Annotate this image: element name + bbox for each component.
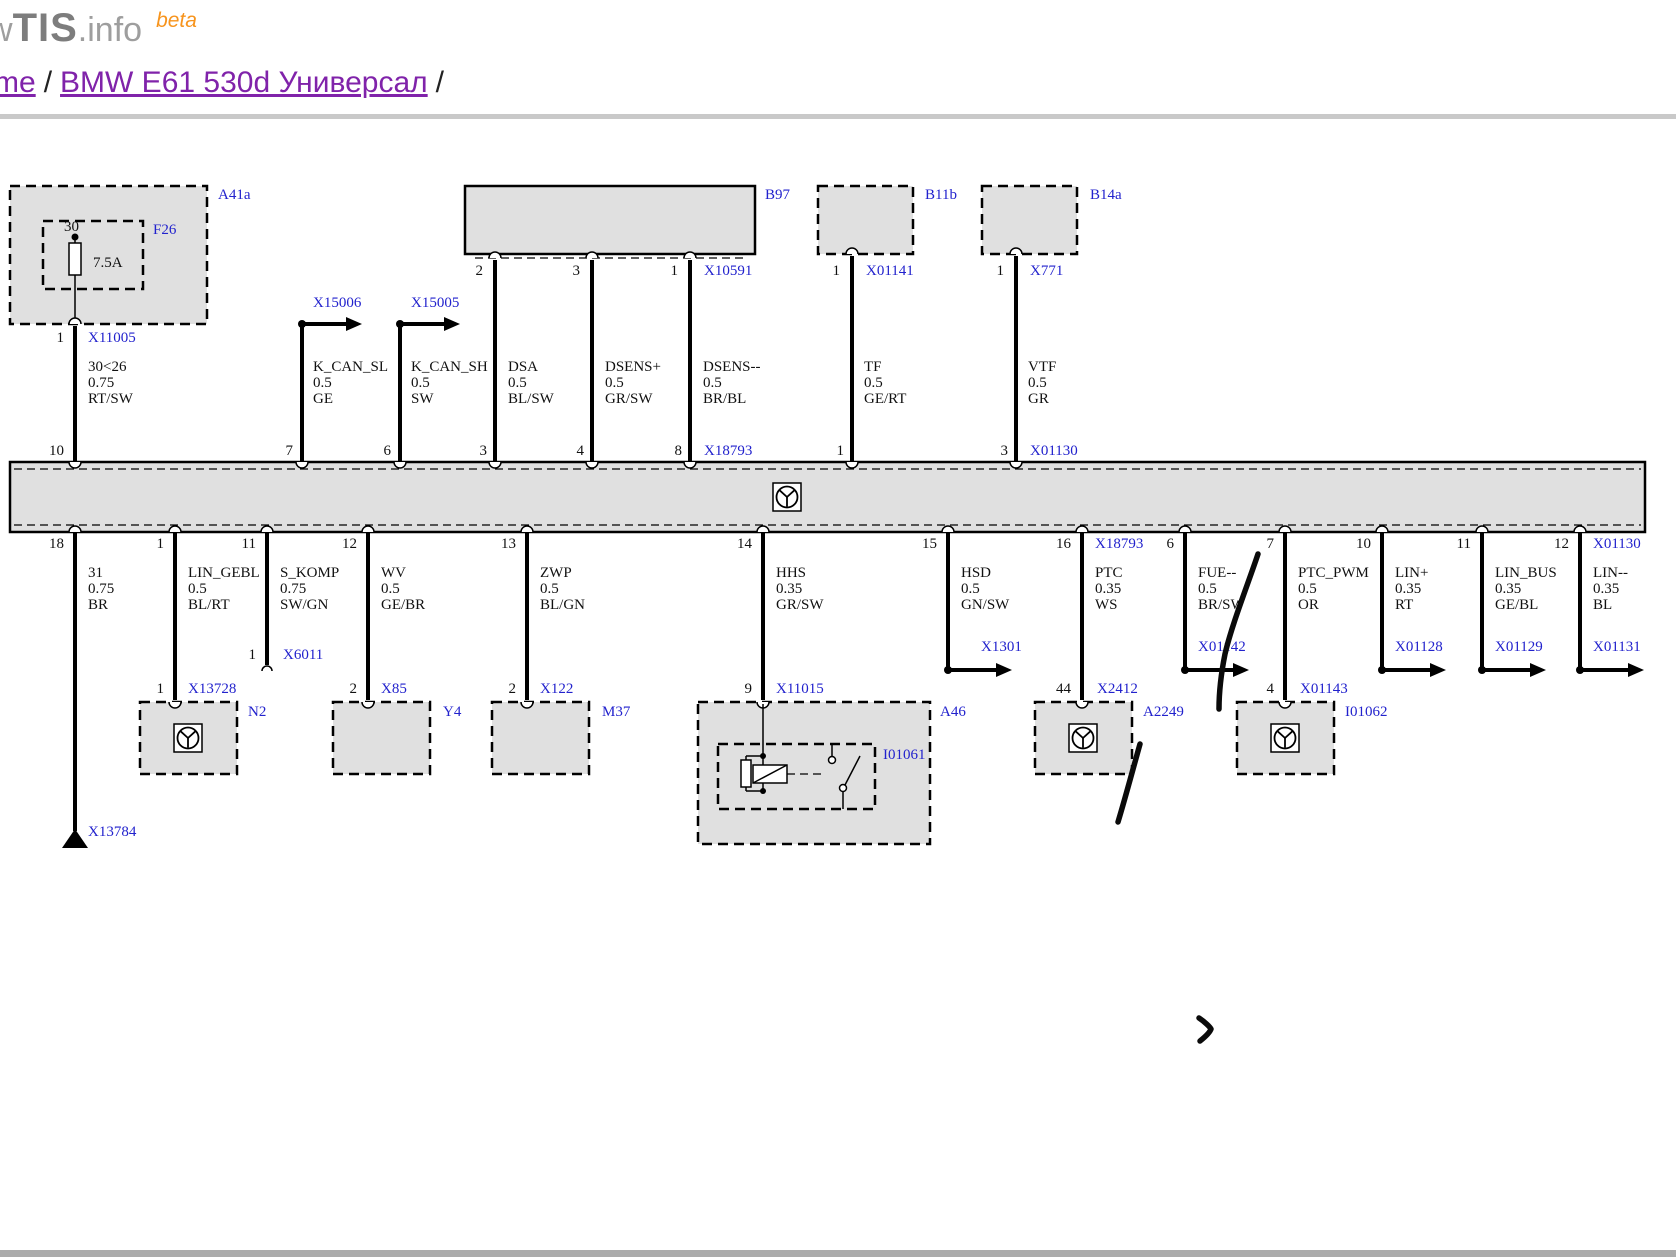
bar-pin-number: 12 bbox=[1554, 536, 1569, 552]
connector-notch bbox=[1179, 526, 1191, 532]
wire-gauge: 0.5 bbox=[605, 375, 624, 391]
connector-notch bbox=[169, 702, 181, 708]
wire-name: FUE-- bbox=[1198, 565, 1236, 581]
connector-label-x01129: X01129 bbox=[1495, 639, 1543, 655]
connector-label-x10591: X10591 bbox=[704, 263, 752, 279]
wire-gauge: 0.75 bbox=[88, 375, 114, 391]
connector-label-x13728: X13728 bbox=[188, 681, 236, 697]
pin-number: 3 bbox=[573, 263, 581, 279]
wire-gauge: 0.5 bbox=[1198, 581, 1217, 597]
breadcrumb: me/BMW E61 530d Универсал/ bbox=[0, 66, 452, 100]
a2249-label: A2249 bbox=[1143, 704, 1184, 720]
wire-color: GE/BR bbox=[381, 597, 425, 613]
arrow-head bbox=[1530, 663, 1546, 677]
pin-number: 9 bbox=[745, 681, 753, 697]
module-icon bbox=[1271, 724, 1299, 752]
i01062-label: I01062 bbox=[1345, 704, 1388, 720]
wire-name: K_CAN_SH bbox=[411, 359, 488, 375]
n2-label: N2 bbox=[248, 704, 266, 720]
wire-gauge: 0.35 bbox=[1095, 581, 1121, 597]
module-icon bbox=[1069, 724, 1097, 752]
pin-number: 4 bbox=[1267, 681, 1275, 697]
connector-notch bbox=[1476, 526, 1488, 532]
bar-pin-number: 14 bbox=[737, 536, 753, 552]
connector-notch bbox=[757, 526, 769, 532]
handwritten-annotations bbox=[1118, 554, 1258, 1041]
bottom-scroll-strip[interactable] bbox=[0, 1250, 1676, 1257]
i01061-label: I01061 bbox=[883, 747, 926, 763]
bar-pin-number: 1 bbox=[837, 443, 845, 459]
logo-beta-badge: beta bbox=[156, 9, 197, 32]
pen-chevron-mark bbox=[1199, 1018, 1211, 1041]
connector-notch bbox=[261, 526, 273, 532]
logo-suffix: .info bbox=[78, 11, 142, 49]
m37-label: M37 bbox=[602, 704, 631, 720]
wire-name: S_KOMP bbox=[280, 565, 339, 581]
wire-color: BR bbox=[88, 597, 108, 613]
wire-gauge: 0.5 bbox=[703, 375, 722, 391]
branch-i01062: 7 PTC_PWM 0.5 OR 4 X01143 I01062 bbox=[1237, 532, 1388, 774]
fuse-symbol bbox=[69, 243, 81, 275]
arrow-head bbox=[996, 663, 1012, 677]
wire-name: LIN-- bbox=[1593, 565, 1628, 581]
bar-pin-number: 11 bbox=[242, 536, 256, 552]
wire-color: GE bbox=[313, 391, 333, 407]
branch-a2249: 16 X18793 PTC 0.35 WS 44 X2412 A2249 bbox=[1035, 532, 1184, 774]
wire-name: K_CAN_SL bbox=[313, 359, 388, 375]
wire-gauge: 0.5 bbox=[540, 581, 559, 597]
fuse-terminal-label: 30 bbox=[64, 219, 79, 235]
main-distribution-bar bbox=[10, 462, 1645, 532]
component-box-b14a: B14a 1 X771 VTF 0.5 GR 3 X01130 bbox=[982, 186, 1122, 462]
wire-gauge: 0.5 bbox=[961, 581, 980, 597]
y4-label: Y4 bbox=[443, 704, 462, 720]
connector-label-x85: X85 bbox=[381, 681, 407, 697]
connector-notch bbox=[362, 526, 374, 532]
wire-gauge: 0.5 bbox=[188, 581, 207, 597]
connector-end bbox=[262, 666, 272, 671]
breadcrumb-home-link[interactable]: me bbox=[0, 66, 36, 99]
connector-notch bbox=[1376, 526, 1388, 532]
wire-name: DSENS-- bbox=[703, 359, 761, 375]
connector-notch bbox=[169, 526, 181, 532]
wiring-diagram: A41a F26 30 7.5A 1 X11005 30<26 0.75 RT/… bbox=[0, 119, 1676, 1250]
branch-x01142: 6 FUE-- 0.5 BR/SW X01142 bbox=[1167, 532, 1250, 677]
connector-notch bbox=[942, 526, 954, 532]
wire-color: GE/RT bbox=[864, 391, 906, 407]
wire-name: LIN_GEBL bbox=[188, 565, 260, 581]
a46-label: A46 bbox=[940, 704, 966, 720]
b97-box bbox=[465, 186, 755, 254]
branch-x01131: 12 X01130 LIN-- 0.35 BL X01131 bbox=[1554, 532, 1644, 677]
wire-color: GR/SW bbox=[776, 597, 824, 613]
connector-notch bbox=[489, 462, 501, 468]
breadcrumb-page-link[interactable]: BMW E61 530d Универсал bbox=[60, 66, 428, 99]
bar-pin-number: 1 bbox=[157, 536, 165, 552]
branch-x1301: 15 HSD 0.5 GN/SW X1301 bbox=[922, 532, 1022, 677]
wire-color: GN/SW bbox=[961, 597, 1010, 613]
pin-number: 1 bbox=[157, 681, 165, 697]
bar-pin-number: 3 bbox=[480, 443, 488, 459]
branch-a46: 14 HHS 0.35 GR/SW 9 X11015 A46 I01061 bbox=[698, 532, 966, 844]
wire-name: PTC bbox=[1095, 565, 1123, 581]
connector-label-x11015: X11015 bbox=[776, 681, 824, 697]
wire-gauge: 0.75 bbox=[88, 581, 114, 597]
bar-pin-number: 10 bbox=[49, 443, 64, 459]
pin-number: 1 bbox=[997, 263, 1005, 279]
resistor-symbol bbox=[741, 760, 751, 787]
connector-label-x01143: X01143 bbox=[1300, 681, 1348, 697]
branch-ground-x13784: 18 31 0.75 BR X13784 bbox=[49, 532, 137, 848]
connector-label-x6011: X6011 bbox=[283, 647, 323, 663]
connector-notch bbox=[69, 318, 81, 324]
arrow-head bbox=[1233, 663, 1249, 677]
bar-pin-number: 6 bbox=[384, 443, 392, 459]
connector-notch bbox=[846, 248, 858, 254]
connector-label-x11005: X11005 bbox=[88, 330, 136, 346]
connector-label-x01142: X01142 bbox=[1198, 639, 1246, 655]
wire-name: TF bbox=[864, 359, 882, 375]
wire-gauge: 0.35 bbox=[776, 581, 802, 597]
b11b-label: B11b bbox=[925, 187, 957, 203]
connector-notch bbox=[1279, 526, 1291, 532]
wire-name: LIN+ bbox=[1395, 565, 1428, 581]
b11b-box bbox=[818, 186, 913, 254]
connector-notch bbox=[521, 702, 533, 708]
wire-color: RT/SW bbox=[88, 391, 134, 407]
wire-name: 31 bbox=[88, 565, 103, 581]
switch-contact bbox=[829, 757, 836, 764]
wire-color: WS bbox=[1095, 597, 1118, 613]
arrow-head bbox=[1430, 663, 1446, 677]
wire-name: LIN_BUS bbox=[1495, 565, 1557, 581]
component-box-b11b: B11b 1 X01141 TF 0.5 GE/RT 1 bbox=[818, 186, 957, 462]
bar-pin-number: 11 bbox=[1457, 536, 1471, 552]
connector-notch bbox=[362, 702, 374, 708]
bar-pin-number: 8 bbox=[675, 443, 683, 459]
logo-brand: TIS bbox=[13, 6, 78, 50]
bar-pin-number: 6 bbox=[1167, 536, 1175, 552]
wire-gauge: 0.5 bbox=[1298, 581, 1317, 597]
pin-number: 2 bbox=[350, 681, 358, 697]
branch-n2: 1 LIN_GEBL 0.5 BL/RT 1 X13728 N2 bbox=[140, 532, 266, 774]
bar-pin-number: 18 bbox=[49, 536, 64, 552]
connector-label-x18793: X18793 bbox=[1095, 536, 1143, 552]
connector-notch bbox=[1574, 526, 1586, 532]
breadcrumb-trailing-slash: / bbox=[436, 66, 444, 99]
wire-color: GR/SW bbox=[605, 391, 653, 407]
connector-notch bbox=[394, 462, 406, 468]
can-branch-x15005: X15005 K_CAN_SH 0.5 SW 6 bbox=[384, 295, 488, 462]
branch-x01128: 10 LIN+ 0.35 RT X01128 bbox=[1356, 532, 1446, 677]
bar-pin-number: 10 bbox=[1356, 536, 1371, 552]
connector-label-x01130: X01130 bbox=[1030, 443, 1078, 459]
connector-notch bbox=[69, 462, 81, 468]
component-box-b97: B97 2 3 1 X10591 DSA 0.5 BL/SW DSENS+ 0.… bbox=[465, 186, 791, 462]
y4-box bbox=[333, 702, 430, 774]
branch-x6011: 11 S_KOMP 0.75 SW/GN 1 X6011 bbox=[242, 532, 340, 671]
connector-label-x15006: X15006 bbox=[313, 295, 362, 311]
connector-notch bbox=[586, 252, 598, 258]
wire-gauge: 0.5 bbox=[313, 375, 332, 391]
connector-notch bbox=[296, 462, 308, 468]
m37-box bbox=[492, 702, 589, 774]
site-logo: wTIS.infobeta bbox=[0, 6, 197, 51]
connector-label-x18793: X18793 bbox=[704, 443, 752, 459]
connector-notch bbox=[1010, 248, 1022, 254]
bar-pin-number: 7 bbox=[1267, 536, 1275, 552]
wire-gauge: 0.75 bbox=[280, 581, 306, 597]
bar-pin-number: 12 bbox=[342, 536, 357, 552]
wire-name: WV bbox=[381, 565, 406, 581]
branch-x01129: 11 LIN_BUS 0.35 GE/BL X01129 bbox=[1457, 532, 1557, 677]
connector-notch bbox=[684, 252, 696, 258]
connector-label-x01131: X01131 bbox=[1593, 639, 1641, 655]
wire-name: VTF bbox=[1028, 359, 1056, 375]
branch-m37: 13 ZWP 0.5 BL/GN 2 X122 M37 bbox=[492, 532, 631, 774]
wire-color: BL/GN bbox=[540, 597, 585, 613]
wire-name: HSD bbox=[961, 565, 991, 581]
connector-label-x122: X122 bbox=[540, 681, 573, 697]
wire-name: ZWP bbox=[540, 565, 572, 581]
wire-gauge: 0.5 bbox=[864, 375, 883, 391]
connector-notch bbox=[684, 462, 696, 468]
wire-name: HHS bbox=[776, 565, 806, 581]
b97-label: B97 bbox=[765, 187, 791, 203]
connector-notch bbox=[1076, 702, 1088, 708]
connector-label-x15005: X15005 bbox=[411, 295, 459, 311]
connector-label-x2412: X2412 bbox=[1097, 681, 1138, 697]
connector-label-x01128: X01128 bbox=[1395, 639, 1443, 655]
arrow-head bbox=[1628, 663, 1644, 677]
connector-notch bbox=[586, 462, 598, 468]
wire-gauge: 0.35 bbox=[1593, 581, 1619, 597]
wire-color: OR bbox=[1298, 597, 1319, 613]
pin-number: 44 bbox=[1056, 681, 1072, 697]
pin-number: 2 bbox=[509, 681, 517, 697]
connector-label-x771: X771 bbox=[1030, 263, 1063, 279]
a46-box bbox=[698, 702, 930, 844]
b14a-label: B14a bbox=[1090, 187, 1122, 203]
breadcrumb-separator: / bbox=[44, 66, 52, 99]
connector-notch bbox=[1076, 526, 1088, 532]
wire-color: GE/BL bbox=[1495, 597, 1538, 613]
pin-number: 2 bbox=[476, 263, 484, 279]
connector-notch bbox=[1279, 702, 1291, 708]
wire-color: RT bbox=[1395, 597, 1413, 613]
wire-name: DSENS+ bbox=[605, 359, 661, 375]
ground-symbol bbox=[62, 829, 88, 848]
wire-gauge: 0.5 bbox=[1028, 375, 1047, 391]
wire-gauge: 0.35 bbox=[1395, 581, 1421, 597]
wire-gauge: 0.35 bbox=[1495, 581, 1521, 597]
arrow-head bbox=[444, 317, 460, 331]
module-icon bbox=[174, 724, 202, 752]
wire-color: BL/SW bbox=[508, 391, 555, 407]
connector-label-x13784: X13784 bbox=[88, 824, 137, 840]
site-header: wTIS.infobeta me/BMW E61 530d Универсал/ bbox=[0, 0, 1676, 119]
logo-prefix: w bbox=[0, 11, 13, 49]
bar-body bbox=[10, 462, 1645, 532]
bar-pin-number: 13 bbox=[501, 536, 516, 552]
f26-label: F26 bbox=[153, 222, 177, 238]
wire-color: BR/BL bbox=[703, 391, 746, 407]
connector-notch bbox=[489, 252, 501, 258]
wire-name: 30<26 bbox=[88, 359, 127, 375]
module-icon bbox=[773, 483, 801, 511]
connector-label-x01141: X01141 bbox=[866, 263, 914, 279]
a41a-label: A41a bbox=[218, 187, 251, 203]
wire-gauge: 0.5 bbox=[411, 375, 430, 391]
wire-color: SW/GN bbox=[280, 597, 329, 613]
pin-number: 1 bbox=[833, 263, 841, 279]
connector-notch bbox=[846, 462, 858, 468]
wire-color: BL bbox=[1593, 597, 1612, 613]
pin-number: 1 bbox=[249, 647, 257, 663]
component-box-a41a: A41a F26 30 7.5A 1 X11005 30<26 0.75 RT/… bbox=[10, 186, 251, 462]
wire-color: GR bbox=[1028, 391, 1049, 407]
bar-pin-number: 4 bbox=[577, 443, 585, 459]
connector-label-x01130: X01130 bbox=[1593, 536, 1641, 552]
bar-pin-number: 15 bbox=[922, 536, 937, 552]
wire-gauge: 0.5 bbox=[381, 581, 400, 597]
arrow-head bbox=[346, 317, 362, 331]
pin-number: 1 bbox=[671, 263, 679, 279]
wire-color: SW bbox=[411, 391, 434, 407]
fuse-rating-label: 7.5A bbox=[93, 255, 123, 271]
can-branch-x15006: X15006 K_CAN_SL 0.5 GE 7 bbox=[286, 295, 389, 462]
wire-name: DSA bbox=[508, 359, 538, 375]
bar-pin-number: 16 bbox=[1056, 536, 1072, 552]
connector-label-x1301: X1301 bbox=[981, 639, 1022, 655]
connector-notch bbox=[521, 526, 533, 532]
bar-pin-number: 7 bbox=[286, 443, 294, 459]
wire-color: BL/RT bbox=[188, 597, 230, 613]
b14a-box bbox=[982, 186, 1077, 254]
connector-notch bbox=[69, 526, 81, 532]
connector-notch bbox=[1010, 462, 1022, 468]
pin-number: 1 bbox=[57, 330, 65, 346]
wire-gauge: 0.5 bbox=[508, 375, 527, 391]
bar-pin-number: 3 bbox=[1001, 443, 1009, 459]
wire-name: PTC_PWM bbox=[1298, 565, 1369, 581]
switch-contact bbox=[840, 785, 847, 792]
branch-y4: 12 WV 0.5 GE/BR 2 X85 Y4 bbox=[333, 532, 462, 774]
